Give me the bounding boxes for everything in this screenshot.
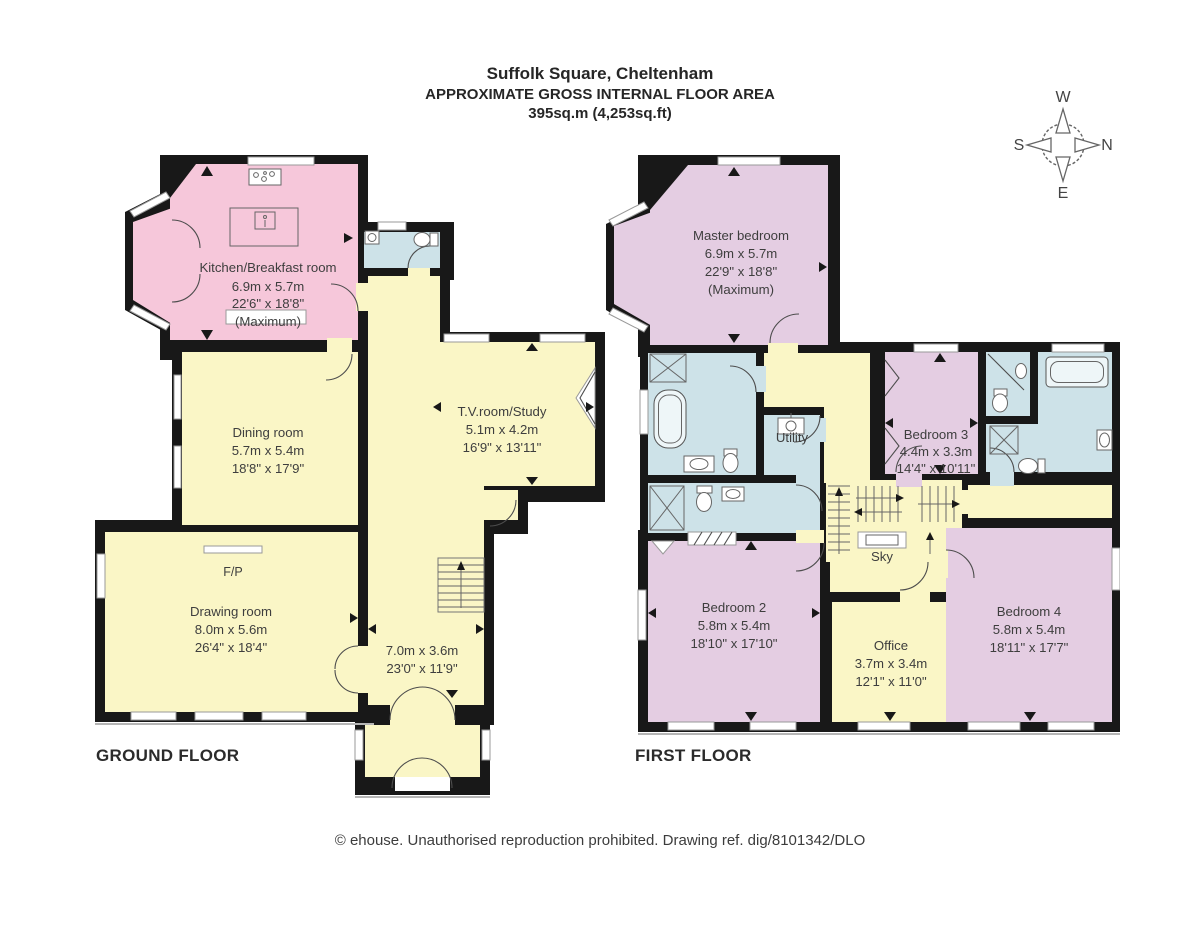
kitchen-name: Kitchen/Breakfast room xyxy=(199,260,336,275)
bedroom2-metric: 5.8m x 5.4m xyxy=(698,618,771,633)
tv-step-landing xyxy=(484,490,518,520)
ground-floor-label: GROUND FLOOR xyxy=(96,746,239,766)
bedroom4-name: Bedroom 4 xyxy=(997,604,1062,619)
copyright-note: © ehouse. Unauthorised reproduction proh… xyxy=(0,832,1200,849)
drawing-room-label: Drawing room 8.0m x 5.6m 26'4" x 18'4" xyxy=(190,604,272,655)
toilet-icon-ensuite xyxy=(993,389,1008,412)
bedroom3-metric: 4.4m x 3.3m xyxy=(900,444,973,459)
bedroom4-metric: 5.8m x 5.4m xyxy=(993,622,1066,637)
master-note: (Maximum) xyxy=(708,282,774,297)
ground-floor-plan: Kitchen/Breakfast room 6.9m x 5.7m 22'6"… xyxy=(92,150,612,800)
sink-icon-shower-room xyxy=(722,487,744,501)
office-imperial: 12'1" x 11'0" xyxy=(855,674,927,689)
bedroom3-label: Bedroom 3 4.4m x 3.3m 14'4" x 10'11" xyxy=(897,427,976,476)
corridor-right xyxy=(968,485,1112,518)
stair-skylight xyxy=(858,532,906,548)
first-floor-plan: Master bedroom 6.9m x 5.7m 22'9" x 18'8"… xyxy=(600,150,1120,750)
hall-imperial: 23'0" x 11'9" xyxy=(386,661,458,676)
wc-toilet-icon xyxy=(414,233,438,247)
drawing-name: Drawing room xyxy=(190,604,272,619)
floorplan-page: Suffolk Square, Cheltenham APPROXIMATE G… xyxy=(0,0,1200,927)
master-name: Master bedroom xyxy=(693,228,789,243)
room-porch xyxy=(365,725,480,777)
bedroom4-imperial: 18'11" x 17'7" xyxy=(990,640,1069,655)
compass-top-label: W xyxy=(1055,89,1071,106)
bedroom2-name: Bedroom 2 xyxy=(702,600,767,615)
drawing-metric: 8.0m x 5.6m xyxy=(195,622,268,637)
bathtub-icon-bath2 xyxy=(1046,357,1108,387)
bedroom2-skylight-hatch xyxy=(688,532,736,545)
sink-icon-ensuite xyxy=(1016,364,1027,379)
opening-wc-door xyxy=(408,268,430,278)
bedroom2-label: Bedroom 2 5.8m x 5.4m 18'10" x 17'10" xyxy=(691,600,778,651)
bedroom4-label: Bedroom 4 5.8m x 5.4m 18'11" x 17'7" xyxy=(990,604,1069,655)
master-imperial: 22'9" x 18'8" xyxy=(705,264,778,279)
dining-imperial: 18'8" x 17'9" xyxy=(232,461,305,476)
master-metric: 6.9m x 5.7m xyxy=(705,246,778,261)
sink-icon-bath2 xyxy=(1097,430,1112,450)
bedroom2-imperial: 18'10" x 17'10" xyxy=(691,636,778,651)
sink-icon-bath1 xyxy=(684,456,714,472)
fireplace-label: F/P xyxy=(223,565,242,579)
wc-sink-icon xyxy=(365,231,379,244)
bedroom3-imperial: 14'4" x 10'11" xyxy=(897,461,976,476)
tv-imperial: 16'9" x 13'11" xyxy=(463,440,542,455)
tv-name: T.V.room/Study xyxy=(458,404,547,419)
staircase-icon xyxy=(438,558,484,612)
dining-name: Dining room xyxy=(232,425,303,440)
tv-metric: 5.1m x 4.2m xyxy=(466,422,539,437)
office-name: Office xyxy=(874,638,908,653)
dining-label: Dining room 5.7m x 5.4m 18'8" x 17'9" xyxy=(232,425,305,476)
toilet-icon-shower-room xyxy=(697,486,713,512)
porch-door-opening xyxy=(395,777,450,791)
fireplace-hearth xyxy=(204,546,262,553)
corridor-connector xyxy=(958,490,970,514)
hob-icon xyxy=(249,169,281,185)
sky-label: Sky xyxy=(871,549,893,564)
opening-drawing-doors xyxy=(356,646,370,693)
opening-dining-door xyxy=(327,338,352,354)
drawing-imperial: 26'4" x 18'4" xyxy=(195,640,268,655)
bedroom3-name: Bedroom 3 xyxy=(904,427,969,442)
tv-room-label: T.V.room/Study 5.1m x 4.2m 16'9" x 13'11… xyxy=(458,404,547,455)
kitchen-imperial: 22'6" x 18'8" xyxy=(232,296,305,311)
utility-label: Utility xyxy=(776,430,809,445)
toilet-icon-bath1 xyxy=(723,449,738,473)
first-floor-label: FIRST FLOOR xyxy=(635,746,752,766)
room-corridor xyxy=(824,353,870,483)
kitchen-note: (Maximum) xyxy=(235,314,301,329)
dining-metric: 5.7m x 5.4m xyxy=(232,443,305,458)
kitchen-metric: 6.9m x 5.7m xyxy=(232,279,305,294)
bathtub-icon-bath1 xyxy=(654,390,686,448)
hall-metric: 7.0m x 3.6m xyxy=(386,643,459,658)
room-landing xyxy=(764,353,826,407)
opening-porch xyxy=(390,698,455,726)
office-metric: 3.7m x 3.4m xyxy=(855,656,928,671)
toilet-icon-bath2 xyxy=(1019,459,1046,474)
